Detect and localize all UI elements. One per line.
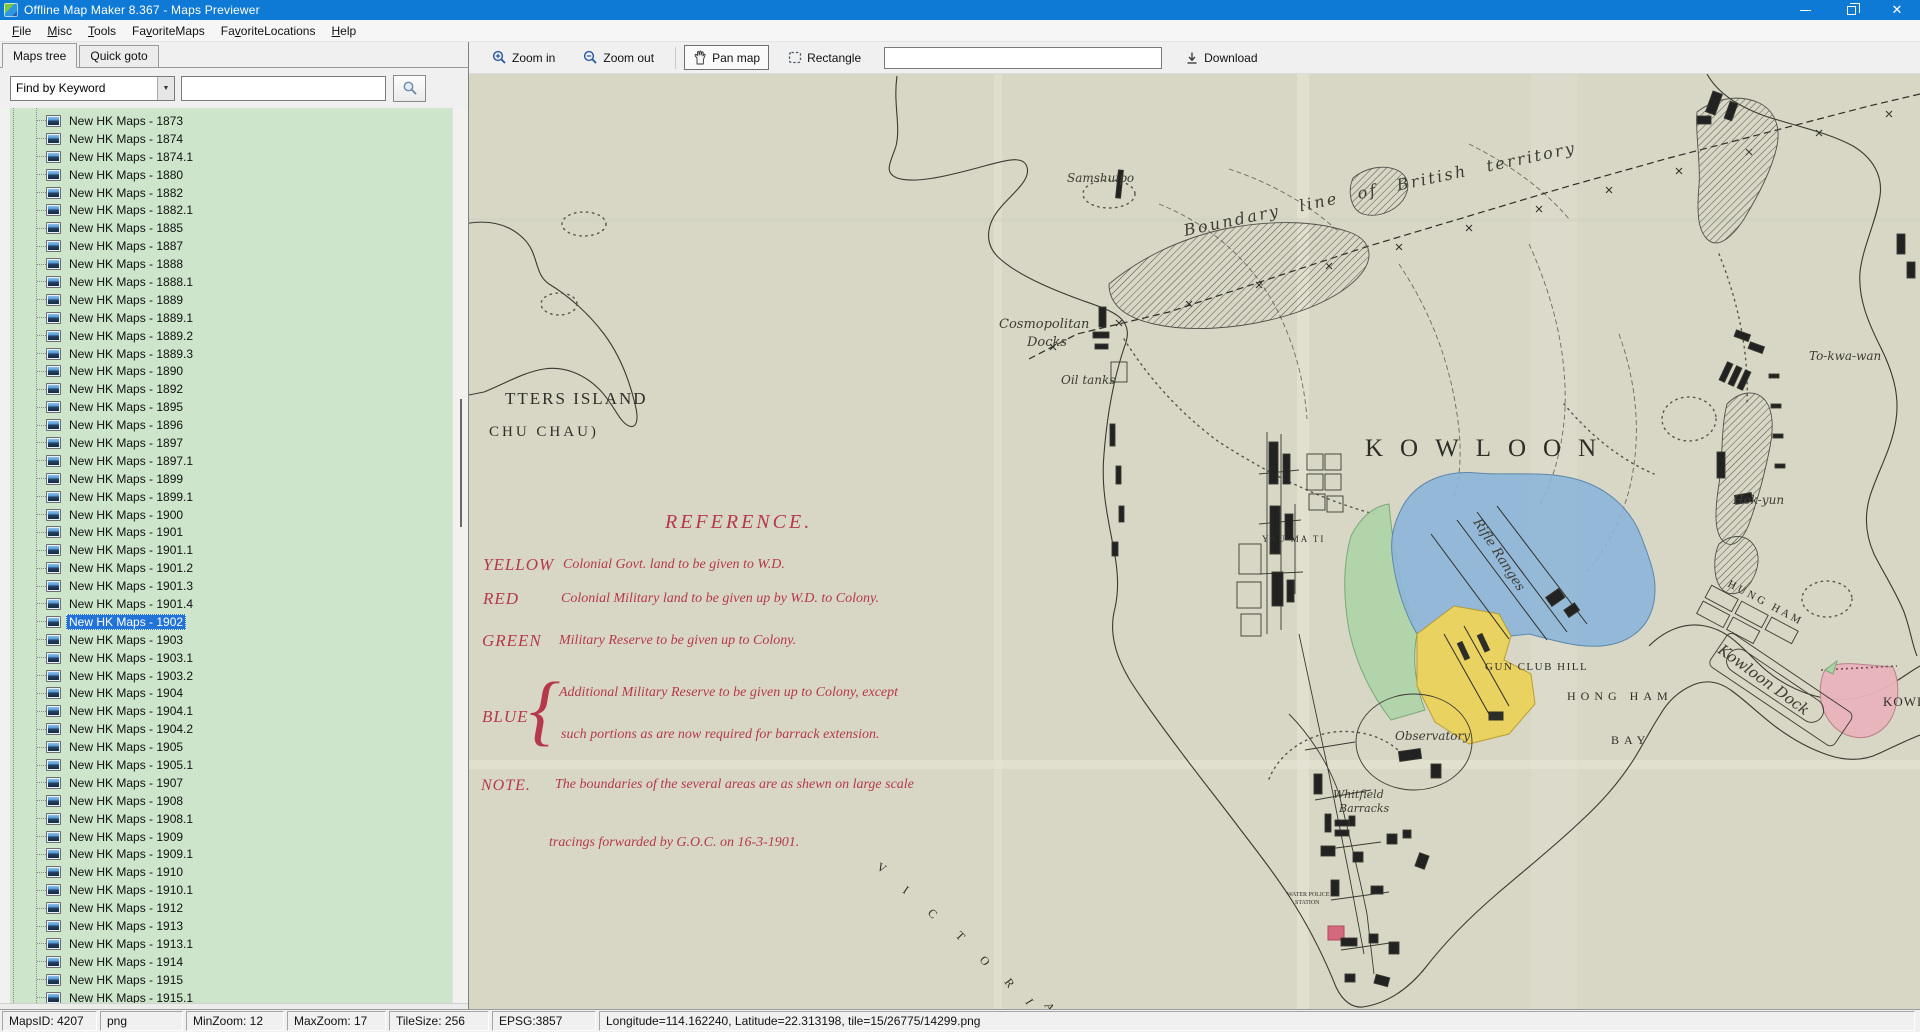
tree-item[interactable]: New HK Maps - 1887 (0, 237, 452, 255)
tree-item-label: New HK Maps - 1899.1 (66, 489, 196, 505)
tree-item-label: New HK Maps - 1915 (66, 972, 186, 988)
map-item-icon (46, 992, 61, 1003)
map-item-icon (46, 294, 61, 306)
map-item-icon (46, 813, 61, 825)
tree-connector (37, 872, 46, 873)
tree-item-label: New HK Maps - 1901.1 (66, 542, 196, 558)
map-item-icon (46, 491, 61, 503)
tree-connector (37, 281, 46, 282)
map-label: STATION (1295, 900, 1320, 906)
tree-item[interactable]: New HK Maps - 1908 (0, 792, 452, 810)
tree-item-label: New HK Maps - 1900 (66, 507, 186, 523)
menu-bar: FileMiscToolsFavoriteMapsFavoriteLocatio… (0, 20, 1920, 42)
tree-item[interactable]: New HK Maps - 1890 (0, 362, 452, 380)
tree-connector (37, 765, 46, 766)
map-label: Hok-yun (1732, 493, 1784, 507)
restore-button[interactable] (1828, 0, 1874, 20)
minimize-button[interactable] (1782, 0, 1828, 20)
tree-item[interactable]: New HK Maps - 1908.1 (0, 810, 452, 828)
tree-item[interactable]: New HK Maps - 1905 (0, 738, 452, 756)
tree-item-label: New HK Maps - 1904.2 (66, 721, 196, 737)
tree-item-label: New HK Maps - 1882.1 (66, 202, 196, 218)
tree-connector (37, 228, 46, 229)
map-item-icon (46, 473, 61, 485)
map-item-icon (46, 258, 61, 270)
tree-item-label: New HK Maps - 1901.3 (66, 578, 196, 594)
map-label: RED (482, 589, 519, 608)
tree-connector (37, 120, 46, 121)
tree-item[interactable]: New HK Maps - 1904.1 (0, 702, 452, 720)
tree-connector (37, 407, 46, 408)
tree-connector (37, 371, 46, 372)
status-panel: TileSize: 256 (389, 1011, 489, 1031)
search-icon (402, 80, 418, 96)
tree-connector (37, 299, 46, 300)
tree-item[interactable]: New HK Maps - 1882.1 (0, 201, 452, 219)
panel-tabs: Maps tree Quick goto (0, 42, 468, 68)
tree-item-label: New HK Maps - 1873 (66, 113, 186, 129)
tree-item[interactable]: New HK Maps - 1913.1 (0, 935, 452, 953)
map-label: Oil tanks (1061, 373, 1115, 387)
menu-favoritemaps[interactable]: FavoriteMaps (124, 21, 213, 41)
tree-connector (37, 550, 46, 551)
download-button[interactable]: Download (1176, 46, 1266, 70)
map-label: CHU CHAU) (489, 424, 599, 440)
zoom-in-button[interactable]: Zoom in (483, 45, 564, 70)
restore-icon (1847, 6, 1856, 15)
map-label: GREEN (482, 631, 542, 650)
zoom-out-button[interactable]: Zoom out (574, 45, 663, 70)
tree-item[interactable]: New HK Maps - 1901.1 (0, 541, 452, 559)
tree-item[interactable]: New HK Maps - 1897.1 (0, 452, 452, 470)
tree-item-label: New HK Maps - 1901.4 (66, 596, 196, 612)
map-item-icon (46, 115, 61, 127)
tree-item[interactable]: New HK Maps - 1910.1 (0, 881, 452, 899)
tree-connector (37, 854, 46, 855)
tree-item[interactable]: New HK Maps - 1889.2 (0, 327, 452, 345)
tree-connector (37, 639, 46, 640)
map-item-icon (46, 884, 61, 896)
scrollbar-thumb[interactable] (460, 399, 462, 527)
rectangle-icon (788, 51, 802, 64)
zoom-in-icon (492, 50, 507, 65)
tree-connector (37, 460, 46, 461)
status-panel: EPSG:3857 (492, 1011, 596, 1031)
tree-horizontal-scrollbar[interactable] (0, 1003, 468, 1009)
map-item-icon (46, 562, 61, 574)
tree-connector (37, 389, 46, 390)
tree-item[interactable]: New HK Maps - 1889.3 (0, 345, 452, 363)
tree-connector (37, 747, 46, 748)
tree-item[interactable]: New HK Maps - 1889.1 (0, 309, 452, 327)
tree-item[interactable]: New HK Maps - 1873 (0, 112, 452, 130)
tree-item[interactable]: New HK Maps - 1915 (0, 971, 452, 989)
tree-item-label: New HK Maps - 1910 (66, 864, 186, 880)
map-label: R (1002, 976, 1018, 991)
tree-item[interactable]: New HK Maps - 1899.1 (0, 488, 452, 506)
download-label: Download (1204, 51, 1257, 65)
tree-item[interactable]: New HK Maps - 1912 (0, 899, 452, 917)
map-item-icon (46, 509, 61, 521)
tree-connector (37, 264, 46, 265)
status-panel: MaxZoom: 17 (287, 1011, 386, 1031)
tree-item[interactable]: New HK Maps - 1903.1 (0, 649, 452, 667)
tree-connector (37, 926, 46, 927)
tree-connector (37, 782, 46, 783)
map-item-icon (46, 169, 61, 181)
map-label: V (875, 859, 890, 876)
tree-item-label: New HK Maps - 1904 (66, 685, 186, 701)
tree-item-label: New HK Maps - 1885 (66, 220, 186, 236)
map-item-icon (46, 187, 61, 199)
tree-item-label: New HK Maps - 1887 (66, 238, 186, 254)
map-label: { (529, 666, 560, 753)
map-label: O (977, 953, 994, 969)
tree-item[interactable]: New HK Maps - 1909 (0, 828, 452, 846)
map-label: BAY (1611, 733, 1650, 747)
map-item-icon (46, 956, 61, 968)
status-panel: MinZoom: 12 (186, 1011, 284, 1031)
map-label: YELLOW (483, 555, 555, 574)
find-mode-value: Find by Keyword (11, 81, 157, 95)
map-item-icon (46, 330, 61, 342)
tree-item-label: New HK Maps - 1880 (66, 167, 186, 183)
tab-quick-goto[interactable]: Quick goto (79, 45, 158, 67)
tree-item[interactable]: New HK Maps - 1910 (0, 863, 452, 881)
map-item-icon (46, 616, 61, 628)
tree-item[interactable]: New HK Maps - 1914 (0, 953, 452, 971)
map-item-icon (46, 455, 61, 467)
download-icon (1185, 51, 1199, 65)
map-label: Additional Military Reserve to be given … (558, 685, 899, 700)
tree-item-label: New HK Maps - 1889.2 (66, 328, 196, 344)
tree-connector (37, 586, 46, 587)
tree-item-label: New HK Maps - 1902 (66, 614, 186, 630)
tree-item[interactable]: New HK Maps - 1901.4 (0, 595, 452, 613)
map-label: T (953, 928, 969, 943)
tree-item-label: New HK Maps - 1905.1 (66, 757, 196, 773)
map-label: To-kwa-wan (1809, 349, 1881, 363)
map-label: Military Reserve to be given up to Colon… (558, 633, 796, 648)
tree-item[interactable]: New HK Maps - 1889 (0, 291, 452, 309)
tree-connector (37, 961, 46, 962)
tree-item[interactable]: New HK Maps - 1899 (0, 470, 452, 488)
tree-item[interactable]: New HK Maps - 1874 (0, 130, 452, 148)
menu-favoritelocations[interactable]: FavoriteLocations (213, 21, 324, 41)
map-item-icon (46, 920, 61, 932)
map-item-icon (46, 795, 61, 807)
map-item-icon (46, 902, 61, 914)
tree-item[interactable]: New HK Maps - 1915.1 (0, 989, 452, 1003)
map-item-icon (46, 276, 61, 288)
tree-item-label: New HK Maps - 1874.1 (66, 149, 196, 165)
pan-hand-icon (693, 50, 707, 65)
status-panel: MapsID: 4207 (2, 1011, 97, 1031)
tree-item[interactable]: New HK Maps - 1913 (0, 917, 452, 935)
status-panel: Longitude=114.162240, Latitude=22.313198… (599, 1011, 1915, 1031)
map-label: KOWLOON (1365, 435, 1613, 462)
tree-item[interactable]: New HK Maps - 1897 (0, 434, 452, 452)
search-row: Find by Keyword ▼ (0, 68, 468, 108)
tree-connector (37, 603, 46, 604)
map-item-icon (46, 598, 61, 610)
military-areas (1328, 472, 1898, 940)
tree-item-label: New HK Maps - 1903.2 (66, 668, 196, 684)
app-icon (4, 3, 18, 17)
map-item-icon (46, 383, 61, 395)
tree-item-label: New HK Maps - 1904.1 (66, 703, 196, 719)
pan-map-label: Pan map (712, 51, 760, 65)
tree-item-label: New HK Maps - 1889.3 (66, 346, 196, 362)
tree-view: New HK Maps - 1873New HK Maps - 1874New … (0, 112, 452, 1003)
map-item-icon (46, 759, 61, 771)
map-item-icon (46, 365, 61, 377)
tree-item[interactable]: New HK Maps - 1901.2 (0, 559, 452, 577)
tree-connector (37, 675, 46, 676)
tree-item-label: New HK Maps - 1914 (66, 954, 186, 970)
tree-vertical-scrollbar[interactable] (452, 108, 468, 1003)
tree-connector (37, 156, 46, 157)
map-item-icon (46, 974, 61, 986)
map-label: I (900, 883, 911, 897)
tree-item[interactable]: New HK Maps - 1905.1 (0, 756, 452, 774)
tree-connector (37, 836, 46, 837)
tree-item-label: New HK Maps - 1892 (66, 381, 186, 397)
tree-item-label: New HK Maps - 1901.2 (66, 560, 196, 576)
map-label: BLUE (482, 707, 529, 726)
map-item-icon (46, 670, 61, 682)
map-label: Colonial Military land to be given up by… (561, 591, 879, 606)
tree-connector (37, 908, 46, 909)
tree-connector (37, 818, 46, 819)
map-label: A (1041, 1000, 1058, 1009)
map-item-icon (46, 437, 61, 449)
map-item-icon (46, 866, 61, 878)
zoom-in-label: Zoom in (512, 51, 555, 65)
tree-item-label: New HK Maps - 1897.1 (66, 453, 196, 469)
tree-connector (37, 711, 46, 712)
map-item-icon (46, 544, 61, 556)
map-item-icon (46, 526, 61, 538)
menu-misc[interactable]: Misc (39, 21, 80, 41)
tree-item[interactable]: New HK Maps - 1903 (0, 631, 452, 649)
map-label: REFERENCE. (664, 511, 812, 533)
tree-connector (37, 979, 46, 980)
map-item-icon (46, 938, 61, 950)
map-label: HONG HAM (1567, 689, 1673, 703)
tree-item[interactable]: New HK Maps - 1904.2 (0, 720, 452, 738)
map-canvas[interactable]: TTERS ISLANDCHU CHAU)SamshuipoCosmopolit… (469, 74, 1920, 1009)
tree-item[interactable]: New HK Maps - 1901.3 (0, 577, 452, 595)
tree-item[interactable]: New HK Maps - 1902 (0, 613, 452, 631)
tree-item-label: New HK Maps - 1889 (66, 292, 186, 308)
map-toolbar: Zoom in Zoom out Pan map (469, 42, 1920, 74)
toolbar-separator (675, 47, 676, 69)
tree-connector (37, 353, 46, 354)
map-item-icon (46, 831, 61, 843)
tree-item[interactable]: New HK Maps - 1909.1 (0, 846, 452, 864)
map-item-icon (46, 151, 61, 163)
menu-tools[interactable]: Tools (80, 21, 124, 41)
map-panel: Zoom in Zoom out Pan map (468, 42, 1920, 1009)
map-label: Samshuipo (1067, 171, 1134, 185)
tree-connector (37, 442, 46, 443)
map-item-icon (46, 848, 61, 860)
tree-item-label: New HK Maps - 1910.1 (66, 882, 196, 898)
tree-item-label: New HK Maps - 1897 (66, 435, 186, 451)
tree-item-label: New HK Maps - 1899 (66, 471, 186, 487)
menu-help[interactable]: Help (323, 21, 364, 41)
tree-item-label: New HK Maps - 1889.1 (66, 310, 196, 326)
map-label: WATER POLICE (1287, 892, 1330, 898)
map-label: Whitfield (1333, 788, 1384, 801)
tab-maps-tree[interactable]: Maps tree (2, 43, 77, 68)
tree-item[interactable]: New HK Maps - 1896 (0, 416, 452, 434)
chevron-down-icon: ▼ (157, 77, 174, 100)
title-bar: Offline Map Maker 8.367 - Maps Previewer… (0, 0, 1920, 20)
map-label: Kowloon Dock (1714, 640, 1813, 719)
tree-item-label: New HK Maps - 1908 (66, 793, 186, 809)
tree-connector (37, 425, 46, 426)
maps-tree: New HK Maps - 1873New HK Maps - 1874New … (0, 108, 468, 1003)
tree-item-label: New HK Maps - 1895 (66, 399, 186, 415)
tree-item-label: New HK Maps - 1915.1 (66, 990, 196, 1003)
tree-connector (37, 317, 46, 318)
menu-file[interactable]: File (4, 21, 39, 41)
tree-connector (37, 890, 46, 891)
tree-item-label: New HK Maps - 1901 (66, 524, 186, 540)
window-title: Offline Map Maker 8.367 - Maps Previewer (24, 3, 260, 17)
zoom-out-icon (583, 50, 598, 65)
map-label: I (1022, 996, 1036, 1007)
coordinates-input[interactable] (884, 47, 1162, 69)
tree-item-label: New HK Maps - 1903 (66, 632, 186, 648)
map-label: GUN CLUB HILL (1485, 661, 1588, 673)
tree-connector (37, 335, 46, 336)
tree-item[interactable]: New HK Maps - 1903.2 (0, 667, 452, 685)
maps-panel: Maps tree Quick goto Find by Keyword ▼ N… (0, 42, 468, 1009)
map-item-icon (46, 580, 61, 592)
tree-item-label: New HK Maps - 1896 (66, 417, 186, 433)
status-panel: png (100, 1011, 183, 1031)
tree-connector (37, 568, 46, 569)
close-icon: ✕ (1892, 4, 1903, 17)
close-button[interactable]: ✕ (1874, 0, 1920, 20)
blue-area (1392, 472, 1655, 646)
map-item-icon (46, 723, 61, 735)
tree-item-label: New HK Maps - 1903.1 (66, 650, 196, 666)
tree-item-label: New HK Maps - 1909 (66, 829, 186, 845)
tree-item-label: New HK Maps - 1907 (66, 775, 186, 791)
map-item-icon (46, 401, 61, 413)
zoom-out-label: Zoom out (603, 51, 654, 65)
map-item-icon (46, 222, 61, 234)
map-label: The boundaries of the several areas are … (555, 777, 914, 792)
tree-item[interactable]: New HK Maps - 1874.1 (0, 148, 452, 166)
map-label: C (925, 906, 940, 922)
tree-item-label: New HK Maps - 1912 (66, 900, 186, 916)
tree-connector (37, 478, 46, 479)
find-mode-select[interactable]: Find by Keyword ▼ (10, 76, 175, 101)
rectangle-button[interactable]: Rectangle (779, 46, 870, 70)
map-label: YAU MA TI (1262, 534, 1325, 544)
tree-item[interactable]: New HK Maps - 1888.1 (0, 273, 452, 291)
map-label: TTERS ISLAND (505, 389, 648, 408)
tree-item[interactable]: New HK Maps - 1885 (0, 219, 452, 237)
tree-connector (37, 997, 46, 998)
tree-connector (37, 174, 46, 175)
map-item-icon (46, 204, 61, 216)
tree-item-label: New HK Maps - 1890 (66, 363, 186, 379)
tree-item[interactable]: New HK Maps - 1892 (0, 380, 452, 398)
tree-item-label: New HK Maps - 1882 (66, 185, 186, 201)
tree-item-label: New HK Maps - 1908.1 (66, 811, 196, 827)
map-label: Observatory (1395, 729, 1470, 743)
tree-item-label: New HK Maps - 1888.1 (66, 274, 196, 290)
map-label: Barracks (1338, 802, 1390, 815)
map-label: Boundary line of British territory (1181, 138, 1578, 240)
map-label: tracings forwarded by G.O.C. on 16-3-190… (549, 835, 799, 850)
minimize-icon (1800, 10, 1811, 11)
tree-item-label: New HK Maps - 1888 (66, 256, 186, 272)
tree-item[interactable]: New HK Maps - 1882 (0, 184, 452, 202)
tree-item-label: New HK Maps - 1913 (66, 918, 186, 934)
map-label: NOTE. (480, 777, 531, 794)
tree-item[interactable]: New HK Maps - 1880 (0, 166, 452, 184)
tree-connector (37, 657, 46, 658)
tree-connector (37, 192, 46, 193)
tree-connector (37, 496, 46, 497)
map-label: Docks (1026, 335, 1067, 350)
tree-connector (37, 693, 46, 694)
map-label: Colonial Govt. land to be given to W.D. (563, 557, 785, 572)
map-item-icon (46, 652, 61, 664)
tree-item[interactable]: New HK Maps - 1904 (0, 685, 452, 703)
tree-connector (37, 621, 46, 622)
map-item-icon (46, 419, 61, 431)
map-item-icon (46, 348, 61, 360)
tree-connector (37, 246, 46, 247)
map-item-icon (46, 687, 61, 699)
tree-connector (37, 138, 46, 139)
tree-connector (37, 729, 46, 730)
tree-connector (37, 210, 46, 211)
map-label: KOWL (1883, 694, 1920, 709)
tree-connector (37, 800, 46, 801)
map-item-icon (46, 240, 61, 252)
tree-connector (37, 532, 46, 533)
pan-map-button[interactable]: Pan map (684, 45, 769, 70)
tree-item[interactable]: New HK Maps - 1901 (0, 523, 452, 541)
tree-item-label: New HK Maps - 1905 (66, 739, 186, 755)
tree-item[interactable]: New HK Maps - 1900 (0, 506, 452, 524)
tree-item-label: New HK Maps - 1913.1 (66, 936, 196, 952)
tree-connector (37, 943, 46, 944)
tree-item[interactable]: New HK Maps - 1888 (0, 255, 452, 273)
map-item-icon (46, 777, 61, 789)
map-label: such portions as are now required for ba… (561, 727, 879, 742)
rectangle-label: Rectangle (807, 51, 861, 65)
map-item-icon (46, 634, 61, 646)
search-button[interactable] (393, 75, 426, 102)
tree-item[interactable]: New HK Maps - 1907 (0, 774, 452, 792)
status-bar: MapsID: 4207pngMinZoom: 12MaxZoom: 17Til… (0, 1009, 1920, 1032)
map-item-icon (46, 705, 61, 717)
map-item-icon (46, 312, 61, 324)
search-input[interactable] (181, 76, 386, 101)
tree-connector (37, 514, 46, 515)
tree-item[interactable]: New HK Maps - 1895 (0, 398, 452, 416)
